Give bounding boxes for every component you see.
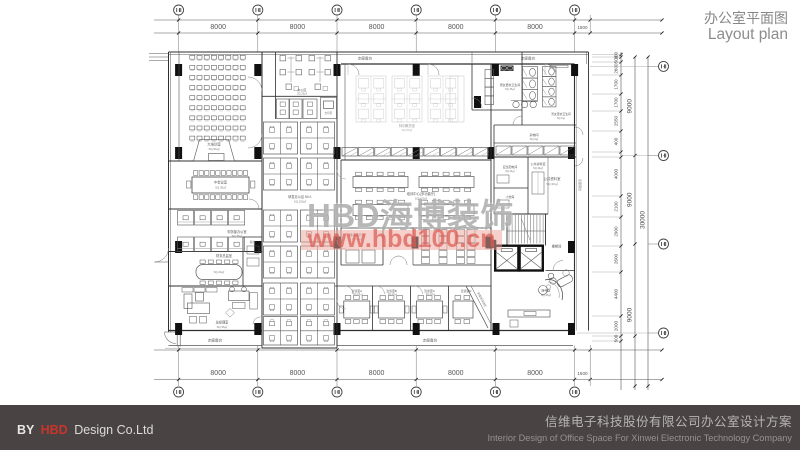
svg-text:2550: 2550 bbox=[614, 115, 619, 126]
svg-text:8000: 8000 bbox=[527, 24, 543, 31]
svg-text:接待区: 接待区 bbox=[541, 288, 550, 293]
svg-text:走廊露台: 走廊露台 bbox=[423, 338, 438, 343]
svg-text:SQ.15㎡: SQ.15㎡ bbox=[353, 292, 363, 296]
svg-text:办公区: 办公区 bbox=[297, 87, 306, 92]
svg-text:400: 400 bbox=[614, 137, 619, 145]
svg-text:SQ.20㎡: SQ.20㎡ bbox=[214, 270, 225, 274]
svg-text:SQ.9㎡: SQ.9㎡ bbox=[557, 116, 566, 120]
svg-text:杂物间: 杂物间 bbox=[529, 132, 538, 137]
svg-text:SQ.15㎡: SQ.15㎡ bbox=[505, 87, 515, 91]
svg-text:SQ.30㎡: SQ.30㎡ bbox=[546, 181, 558, 186]
svg-text:走廊露台: 走廊露台 bbox=[578, 179, 583, 191]
svg-text:8000: 8000 bbox=[210, 24, 226, 31]
svg-text:1500: 1500 bbox=[577, 25, 588, 30]
svg-text:公共资料室: 公共资料室 bbox=[530, 161, 545, 166]
svg-text:9000: 9000 bbox=[627, 307, 634, 322]
svg-text:1700: 1700 bbox=[614, 97, 619, 108]
svg-text:SQ.40㎡: SQ.40㎡ bbox=[352, 237, 362, 241]
svg-text:走廊露台: 走廊露台 bbox=[208, 338, 223, 343]
svg-text:SQ.90㎡: SQ.90㎡ bbox=[208, 146, 219, 151]
svg-text:文印区: 文印区 bbox=[325, 111, 333, 115]
svg-text:8000: 8000 bbox=[369, 24, 385, 31]
svg-text:2600: 2600 bbox=[614, 253, 619, 264]
svg-text:总经理室: 总经理室 bbox=[216, 320, 229, 325]
svg-text:SQ.50㎡: SQ.50㎡ bbox=[402, 128, 413, 132]
svg-text:SQ.35㎡: SQ.35㎡ bbox=[217, 325, 228, 329]
svg-text:30000: 30000 bbox=[640, 211, 647, 229]
svg-text:9000: 9000 bbox=[627, 192, 634, 207]
svg-text:大培训室: 大培训室 bbox=[207, 142, 221, 147]
svg-text:SQ.35㎡: SQ.35㎡ bbox=[215, 186, 226, 190]
svg-text:SQ.10㎡: SQ.10㎡ bbox=[505, 169, 515, 173]
svg-text:8000: 8000 bbox=[210, 370, 226, 377]
svg-text:2100: 2100 bbox=[614, 201, 619, 212]
svg-text:8000: 8000 bbox=[290, 24, 306, 31]
svg-text:1700: 1700 bbox=[614, 79, 619, 90]
svg-text:SQ.25㎡: SQ.25㎡ bbox=[297, 92, 307, 96]
svg-text:8000: 8000 bbox=[448, 370, 464, 377]
svg-text:SQ.9㎡: SQ.9㎡ bbox=[530, 137, 539, 141]
svg-text:走廊露台: 走廊露台 bbox=[521, 56, 536, 61]
svg-text:2600: 2600 bbox=[614, 63, 619, 74]
svg-text:8000: 8000 bbox=[290, 370, 306, 377]
svg-text:特品展示室: 特品展示室 bbox=[349, 232, 364, 237]
svg-text:SQ.35㎡: SQ.35㎡ bbox=[232, 234, 243, 238]
svg-text:4000: 4000 bbox=[614, 168, 619, 179]
svg-text:SQ.150㎡: SQ.150㎡ bbox=[294, 200, 306, 204]
svg-text:4400: 4400 bbox=[614, 288, 619, 299]
svg-text:2000: 2000 bbox=[614, 320, 619, 331]
svg-text:500: 500 bbox=[614, 334, 619, 342]
svg-text:财务总监室: 财务总监室 bbox=[216, 253, 232, 258]
svg-text:SQ.30㎡: SQ.30㎡ bbox=[533, 166, 543, 170]
svg-text:中会议室: 中会议室 bbox=[214, 180, 228, 185]
svg-text:洽谈室D: 洽谈室D bbox=[461, 288, 472, 293]
svg-text:8000: 8000 bbox=[448, 24, 464, 31]
svg-text:500: 500 bbox=[614, 55, 619, 63]
svg-text:2900: 2900 bbox=[614, 226, 619, 237]
svg-text:培训中心(多功能厅): 培训中心(多功能厅) bbox=[407, 191, 436, 196]
svg-text:走廊露台: 走廊露台 bbox=[358, 56, 373, 61]
svg-text:SQ.15㎡: SQ.15㎡ bbox=[426, 292, 436, 296]
svg-text:公共资料室: 公共资料室 bbox=[544, 176, 562, 181]
svg-text:研发办公区 80人: 研发办公区 80人 bbox=[288, 194, 312, 199]
svg-text:8000: 8000 bbox=[369, 370, 385, 377]
svg-text:楼梯间: 楼梯间 bbox=[552, 244, 562, 249]
svg-text:男女更衣卫生间: 男女更衣卫生间 bbox=[500, 82, 520, 87]
svg-text:8000: 8000 bbox=[527, 370, 543, 377]
svg-text:9000: 9000 bbox=[626, 99, 633, 114]
svg-text:1500: 1500 bbox=[577, 371, 588, 376]
svg-text:小仓库: 小仓库 bbox=[506, 194, 515, 199]
svg-text:男女更衣卫生间: 男女更衣卫生间 bbox=[551, 112, 571, 116]
svg-text:秘书: 秘书 bbox=[250, 240, 256, 244]
svg-text:应急配电间: 应急配电间 bbox=[503, 164, 518, 169]
svg-text:SQ.120㎡: SQ.120㎡ bbox=[415, 197, 427, 201]
svg-text:SQ.15㎡: SQ.15㎡ bbox=[388, 292, 398, 296]
